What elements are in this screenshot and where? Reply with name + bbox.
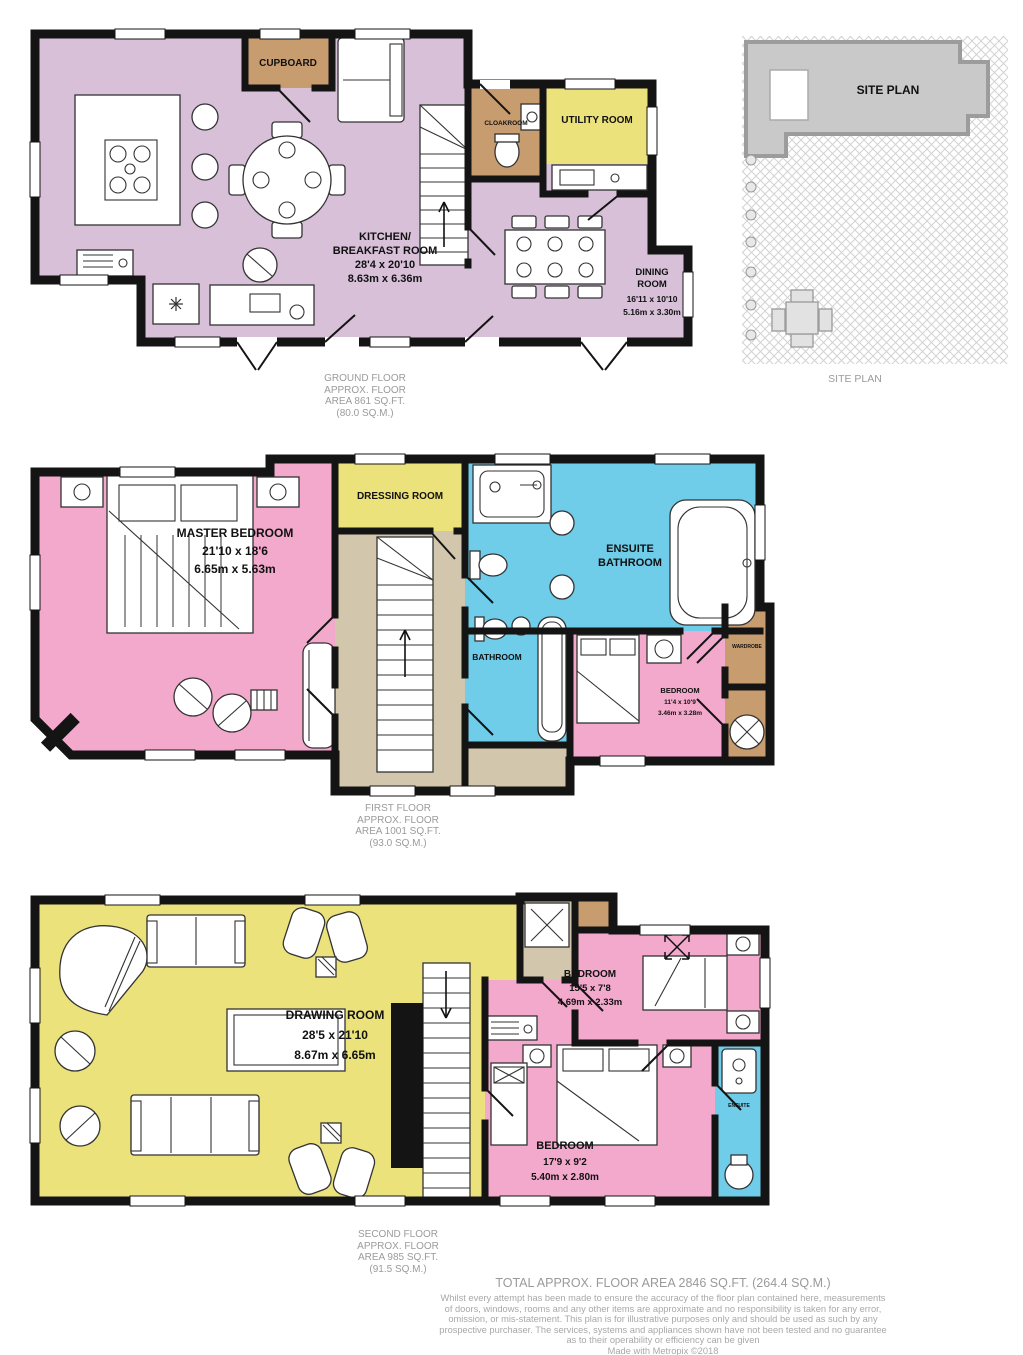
site-plan: SITE PLAN: [738, 32, 1013, 370]
svg-text:BEDROOM: BEDROOM: [536, 1140, 593, 1152]
utility-room-label: UTILITY ROOM: [561, 115, 632, 126]
kitchen-island: [75, 95, 180, 225]
single-bed: [491, 1063, 527, 1145]
svg-text:BREAKFAST ROOM: BREAKFAST ROOM: [333, 245, 438, 257]
cloakroom-toilet: [495, 134, 519, 167]
second-floor-stairs: [423, 963, 470, 1201]
svg-text:ENSUITE: ENSUITE: [606, 543, 654, 555]
footer: TOTAL APPROX. FLOOR AREA 2846 SQ.FT. (26…: [425, 1276, 901, 1355]
made-with-credit: Made with Metropix ©2018: [425, 1346, 901, 1355]
svg-text:8.67m x 6.65m: 8.67m x 6.65m: [294, 1048, 375, 1062]
kitchen-sink-unit: [77, 250, 133, 276]
cloakroom-label: CLOAKROOM: [484, 120, 527, 127]
svg-text:4.69m x 2.33m: 4.69m x 2.33m: [558, 997, 622, 1008]
svg-text:BEDROOM: BEDROOM: [564, 969, 616, 980]
site-building-label: SITE PLAN: [857, 83, 920, 97]
kitchen-counter-desk: [210, 285, 314, 325]
svg-text:28'5 x 21'10: 28'5 x 21'10: [302, 1028, 368, 1042]
cupboard-label: CUPBOARD: [259, 58, 317, 69]
ground-floor-plan: CUPBOARD CLOAKROOM UTILITY ROOM KITCHEN/…: [25, 22, 695, 377]
svg-text:21'10 x 18'6: 21'10 x 18'6: [202, 544, 268, 558]
first-bedroom-label: BEDROOM 11'4 x 10'9 3.46m x 3.28m: [658, 686, 702, 717]
first-floor-plan: MASTER BEDROOM 21'10 x 18'6 6.65m x 5.63…: [25, 445, 775, 797]
wardrobe-label: WARDROBE: [732, 644, 762, 650]
utility-counter: [552, 165, 647, 190]
svg-text:ROOM: ROOM: [637, 279, 667, 290]
chaise-lounge: [303, 643, 335, 748]
svg-text:11'4 x 10'9: 11'4 x 10'9: [664, 699, 696, 706]
floorplan-page: CUPBOARD CLOAKROOM UTILITY ROOM KITCHEN/…: [0, 0, 1023, 1355]
dressing-room-label: DRESSING ROOM: [357, 491, 443, 502]
svg-text:17'9 x 9'2: 17'9 x 9'2: [543, 1157, 587, 1168]
chimney-breast: [391, 1003, 423, 1168]
disclaimer: Whilst every attempt has been made to en…: [425, 1293, 901, 1355]
total-floor-area: TOTAL APPROX. FLOOR AREA 2846 SQ.FT. (26…: [425, 1276, 901, 1290]
first-floor-stairs: [377, 537, 433, 772]
svg-text:28'4 x 20'10: 28'4 x 20'10: [355, 259, 415, 271]
svg-text:5.16m x 3.30m: 5.16m x 3.30m: [623, 307, 681, 317]
svg-text:BATHROOM: BATHROOM: [598, 557, 662, 569]
dining-table: [505, 216, 605, 298]
ensuite-bath: [670, 500, 755, 625]
svg-text:KITCHEN/: KITCHEN/: [359, 231, 411, 243]
svg-text:16'11 x 10'10: 16'11 x 10'10: [627, 294, 678, 304]
tub-chair: [243, 248, 277, 282]
second-cupboard: [575, 897, 613, 930]
sofa: [338, 38, 404, 122]
site-plan-caption: SITE PLAN: [795, 373, 915, 385]
freezer: [153, 284, 199, 324]
svg-text:5.40m x 2.80m: 5.40m x 2.80m: [531, 1172, 599, 1183]
svg-text:MASTER BEDROOM: MASTER BEDROOM: [177, 526, 294, 540]
second-floor-plan: DRAWING ROOM 28'5 x 21'10 8.67m x 6.65m …: [25, 883, 773, 1215]
ensuite-shower: [473, 465, 551, 523]
svg-text:15'5 x 7'8: 15'5 x 7'8: [569, 983, 611, 994]
radiator-unit: [487, 1016, 537, 1040]
second-ensuite-label: ENSUITE: [728, 1103, 750, 1109]
svg-text:BEDROOM: BEDROOM: [660, 686, 699, 695]
svg-text:8.63m x 6.36m: 8.63m x 6.36m: [348, 273, 423, 285]
bathroom-label: BATHROOM: [472, 652, 521, 662]
landing-lower: [465, 745, 570, 791]
sofa-top: [147, 915, 245, 967]
second-floor-caption: SECOND FLOOR APPROX. FLOOR AREA 985 SQ.F…: [333, 1229, 463, 1275]
sofa-bottom: [131, 1095, 259, 1155]
svg-text:3.46m x 3.28m: 3.46m x 3.28m: [658, 710, 702, 717]
svg-text:DRAWING ROOM: DRAWING ROOM: [286, 1008, 385, 1022]
bar-stools: [192, 104, 218, 228]
ground-floor-caption: GROUND FLOOR APPROX. FLOOR AREA 861 SQ.F…: [300, 373, 430, 419]
first-floor-caption: FIRST FLOOR APPROX. FLOOR AREA 1001 SQ.F…: [333, 803, 463, 849]
skylight-hatch: [525, 903, 569, 947]
stairs: [420, 105, 468, 265]
svg-text:6.65m x 5.63m: 6.65m x 5.63m: [194, 562, 275, 576]
svg-text:DINING: DINING: [635, 267, 668, 278]
wardrobe-window-circle: [730, 715, 764, 749]
site-building-entry: [770, 70, 808, 120]
